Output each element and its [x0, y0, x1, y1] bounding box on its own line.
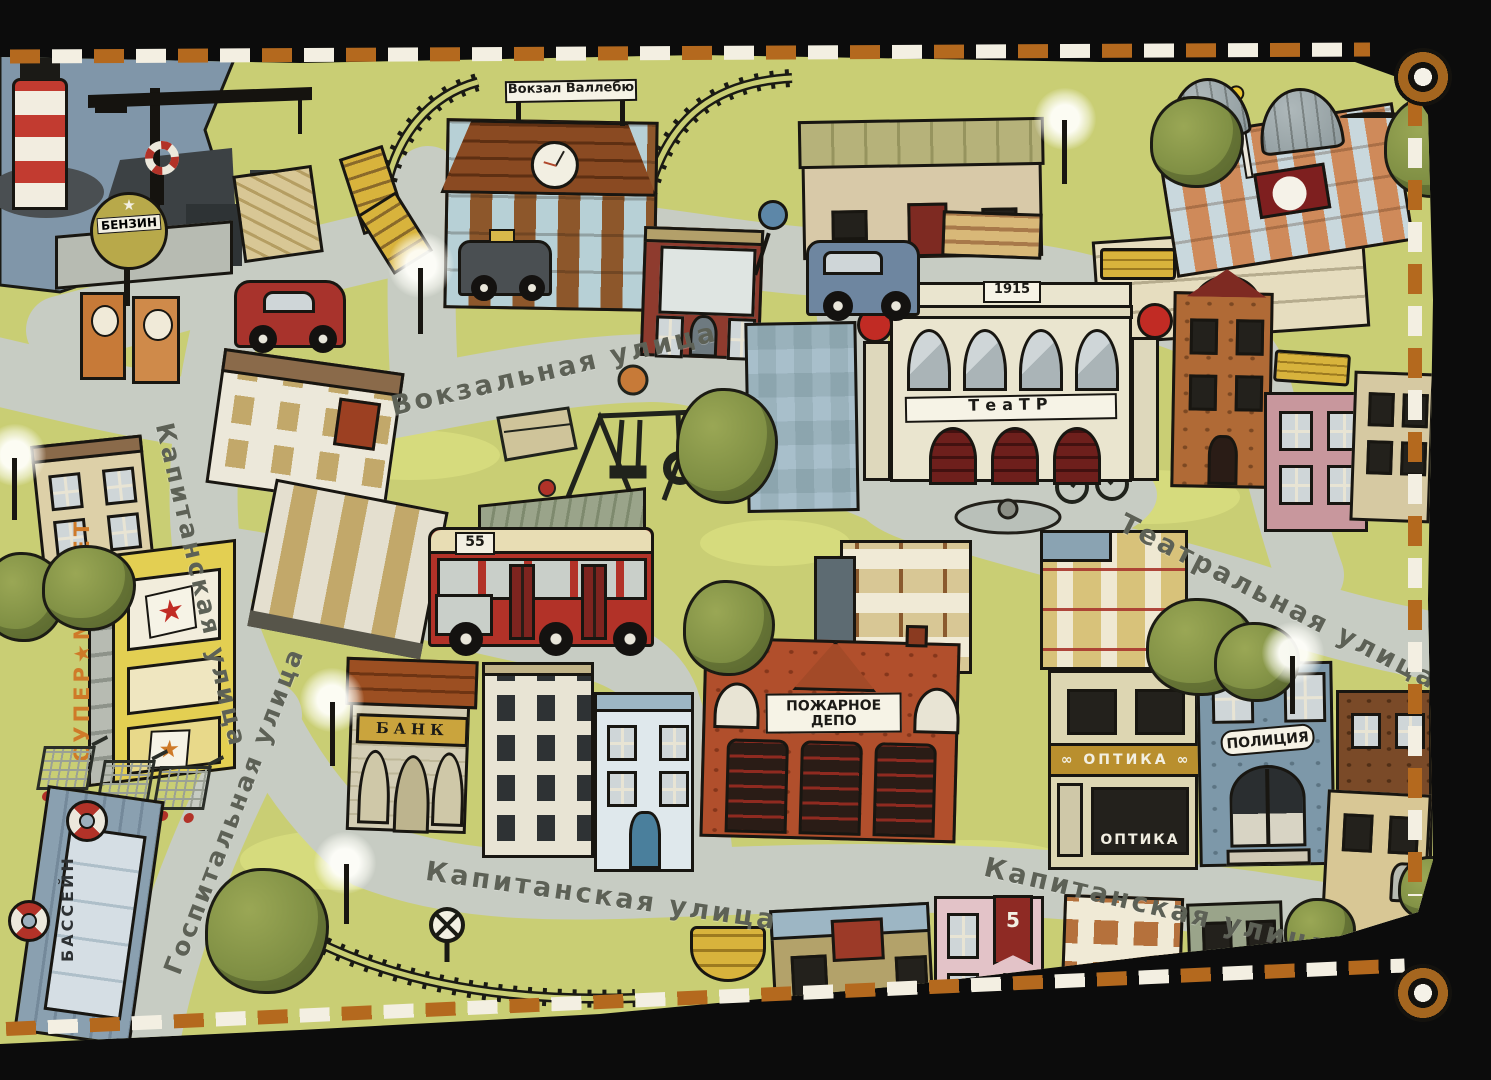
- theater-window: [963, 329, 1007, 391]
- tree: [676, 388, 778, 504]
- house-number: 5: [1006, 908, 1020, 932]
- police-sign: ПОЛИЦИЯ: [1220, 723, 1316, 757]
- tower-door: [1207, 435, 1238, 486]
- hay-stack: [232, 165, 323, 263]
- street-lamp: [418, 268, 423, 334]
- theater-door: [1053, 427, 1101, 485]
- bank-sign: БАНК: [356, 713, 469, 747]
- car-wheel: [823, 291, 853, 321]
- blue-white-house: [594, 692, 694, 872]
- police-sign-label: ПОЛИЦИЯ: [1226, 729, 1310, 752]
- roofband: [482, 662, 594, 676]
- blue-roof-section: [1040, 530, 1112, 562]
- bus-door: [581, 564, 607, 640]
- glasses-icon: ∞: [1177, 752, 1192, 768]
- fountain-ball: [999, 500, 1017, 518]
- window: [48, 472, 84, 511]
- map-canvas: ★ БЕНЗИН Вокзал Валлебю: [0, 0, 1491, 1080]
- blue-suv: [806, 240, 920, 316]
- round-red-sign: [1137, 303, 1173, 339]
- glasses-icon: ∞: [1061, 752, 1076, 768]
- theater-sign-label: ТеаТР: [968, 394, 1054, 414]
- warehouse-roof: [798, 117, 1045, 169]
- window: [607, 771, 637, 807]
- tower-window: [1235, 375, 1264, 411]
- theater-pillar: [863, 341, 891, 481]
- stitch-border-right: [1408, 96, 1422, 896]
- car-wheel: [471, 275, 497, 301]
- window: [102, 466, 138, 505]
- bank: БАНК: [346, 698, 471, 834]
- tree: [683, 580, 775, 676]
- window: [1368, 392, 1395, 427]
- tree: [1150, 96, 1244, 188]
- car-wheel: [881, 291, 911, 321]
- optics-band-label: ОПТИКА: [1083, 752, 1168, 768]
- blue-balloon: [758, 200, 788, 230]
- life-ring-icon: [66, 800, 108, 842]
- street-lamp: [1290, 656, 1295, 714]
- bus-route-sign: 55: [455, 532, 495, 555]
- tree: [1384, 96, 1482, 198]
- station-sign-label: Вокзал Валлебю: [508, 80, 635, 97]
- theater-window: [1019, 329, 1063, 391]
- fire-chimney: [905, 625, 928, 648]
- lighthouse: [12, 78, 68, 210]
- tower-window: [1189, 374, 1218, 410]
- garage-door: [799, 740, 863, 836]
- street-lamp: [1062, 120, 1067, 184]
- fire-station-sign: ПОЖАРНОЕ ДЕПО: [766, 692, 902, 733]
- bus-route-number: 55: [465, 534, 484, 550]
- optics-door: [1057, 783, 1083, 857]
- gas-sign-star-icon: ★: [122, 196, 135, 214]
- theater-cornice: [889, 305, 1133, 319]
- car-wheel: [309, 325, 337, 353]
- bank-door: [393, 755, 432, 834]
- street-lamp: [344, 864, 349, 924]
- optics-window: [1135, 689, 1185, 735]
- theater: 1915 ТеаТР: [890, 282, 1132, 482]
- garage-door: [872, 742, 936, 838]
- bus-wheel: [539, 622, 573, 656]
- theater-year-plaque: 1915: [983, 281, 1041, 303]
- window: [1279, 411, 1313, 451]
- station-sign-post: [620, 100, 625, 126]
- house-number-banner: 5: [993, 895, 1033, 965]
- window: [107, 512, 143, 551]
- fire-sign-line2: ДЕПО: [811, 713, 857, 729]
- life-ring-icon: [8, 900, 50, 942]
- fuel-pump: [132, 296, 180, 384]
- theater-pillar: [1131, 337, 1159, 481]
- optics-window-label: ОПТИКА: [1100, 832, 1179, 848]
- optics-window: [1067, 689, 1117, 735]
- fire-gable: [792, 640, 877, 692]
- grommet: [1394, 48, 1452, 106]
- park-bench: [1100, 248, 1176, 280]
- theater-door: [991, 427, 1039, 485]
- tower-window: [1190, 318, 1219, 354]
- bus-door: [509, 564, 535, 640]
- bottom-house-khaki: [769, 902, 935, 1026]
- bank-roof: [345, 657, 479, 710]
- apt1-brick-inset: [333, 398, 381, 451]
- bank-sign-label: БАНК: [376, 719, 449, 740]
- tree: [42, 545, 136, 631]
- bottom-house-pink: 5: [934, 896, 1044, 1022]
- bus-wheel: [613, 622, 647, 656]
- sandbox: [498, 408, 576, 496]
- lumber-stack: [941, 210, 1043, 259]
- theater-window: [1075, 329, 1119, 391]
- theater-sign: ТеаТР: [905, 393, 1117, 423]
- fuel-pump: [80, 292, 126, 380]
- orange-ball: [619, 366, 647, 394]
- theater-year-label: 1915: [994, 282, 1030, 297]
- theater-door: [929, 427, 977, 485]
- street-lamp: [330, 702, 335, 766]
- pool-sign-label: БАССЕЙН: [58, 855, 77, 962]
- optics-sign-band: ∞ ОПТИКА ∞: [1048, 743, 1204, 777]
- gas-station-sign-label: БЕНЗИН: [97, 214, 162, 234]
- window: [1366, 440, 1393, 475]
- price-star-icon: ★: [157, 735, 181, 764]
- railway-crossing-sign: [431, 909, 463, 962]
- shopping-cart-icon: [36, 746, 96, 790]
- tree: [205, 868, 329, 994]
- bank-window: [357, 749, 392, 824]
- optics-shop: ∞ ОПТИКА ∞ ОПТИКА: [1048, 670, 1198, 870]
- fire-window: [913, 687, 960, 734]
- big-window: [658, 246, 756, 317]
- bucket: [539, 480, 555, 496]
- grommet: [1394, 964, 1452, 1022]
- tower-window: [1236, 319, 1265, 355]
- station-sign: Вокзал Валлебю: [505, 79, 637, 103]
- price-star-icon: ★: [156, 591, 186, 631]
- car-cargo-box: [489, 229, 515, 243]
- street-lamp: [12, 458, 17, 520]
- roofband: [594, 692, 694, 712]
- window: [607, 725, 637, 761]
- warehouse-window: [831, 210, 868, 241]
- car-window: [263, 291, 315, 313]
- suv-window: [823, 251, 883, 275]
- car-wheel: [249, 325, 277, 353]
- fire-window: [713, 682, 760, 729]
- bus: 55: [428, 527, 654, 647]
- town-play-mat-map: ★ БЕНЗИН Вокзал Валлебю: [0, 0, 1491, 1080]
- window: [1279, 465, 1313, 505]
- park-bench: [1273, 349, 1351, 386]
- window: [947, 913, 979, 959]
- optics-display-window: ОПТИКА: [1091, 787, 1189, 855]
- bank-window: [431, 752, 466, 827]
- bus-wheel: [449, 622, 483, 656]
- window: [1351, 713, 1381, 749]
- station-sign-post: [516, 102, 521, 122]
- police-steps: [1226, 848, 1310, 865]
- car-wheel: [519, 275, 545, 301]
- red-dormer: [831, 917, 885, 962]
- window: [659, 725, 689, 761]
- theater-window: [907, 329, 951, 391]
- brick-tower-house: [1170, 291, 1273, 489]
- white-apartment-bank: [482, 662, 594, 858]
- red-house-roofband: [644, 226, 764, 246]
- garage-door: [725, 738, 789, 834]
- blue-door: [629, 811, 661, 869]
- grey-car: [458, 240, 552, 296]
- gas-station-sign: ★ БЕНЗИН: [90, 192, 168, 270]
- window: [659, 771, 689, 807]
- window: [1342, 813, 1374, 853]
- pool-sign: БАССЕЙН: [58, 855, 77, 962]
- red-car: [234, 280, 346, 348]
